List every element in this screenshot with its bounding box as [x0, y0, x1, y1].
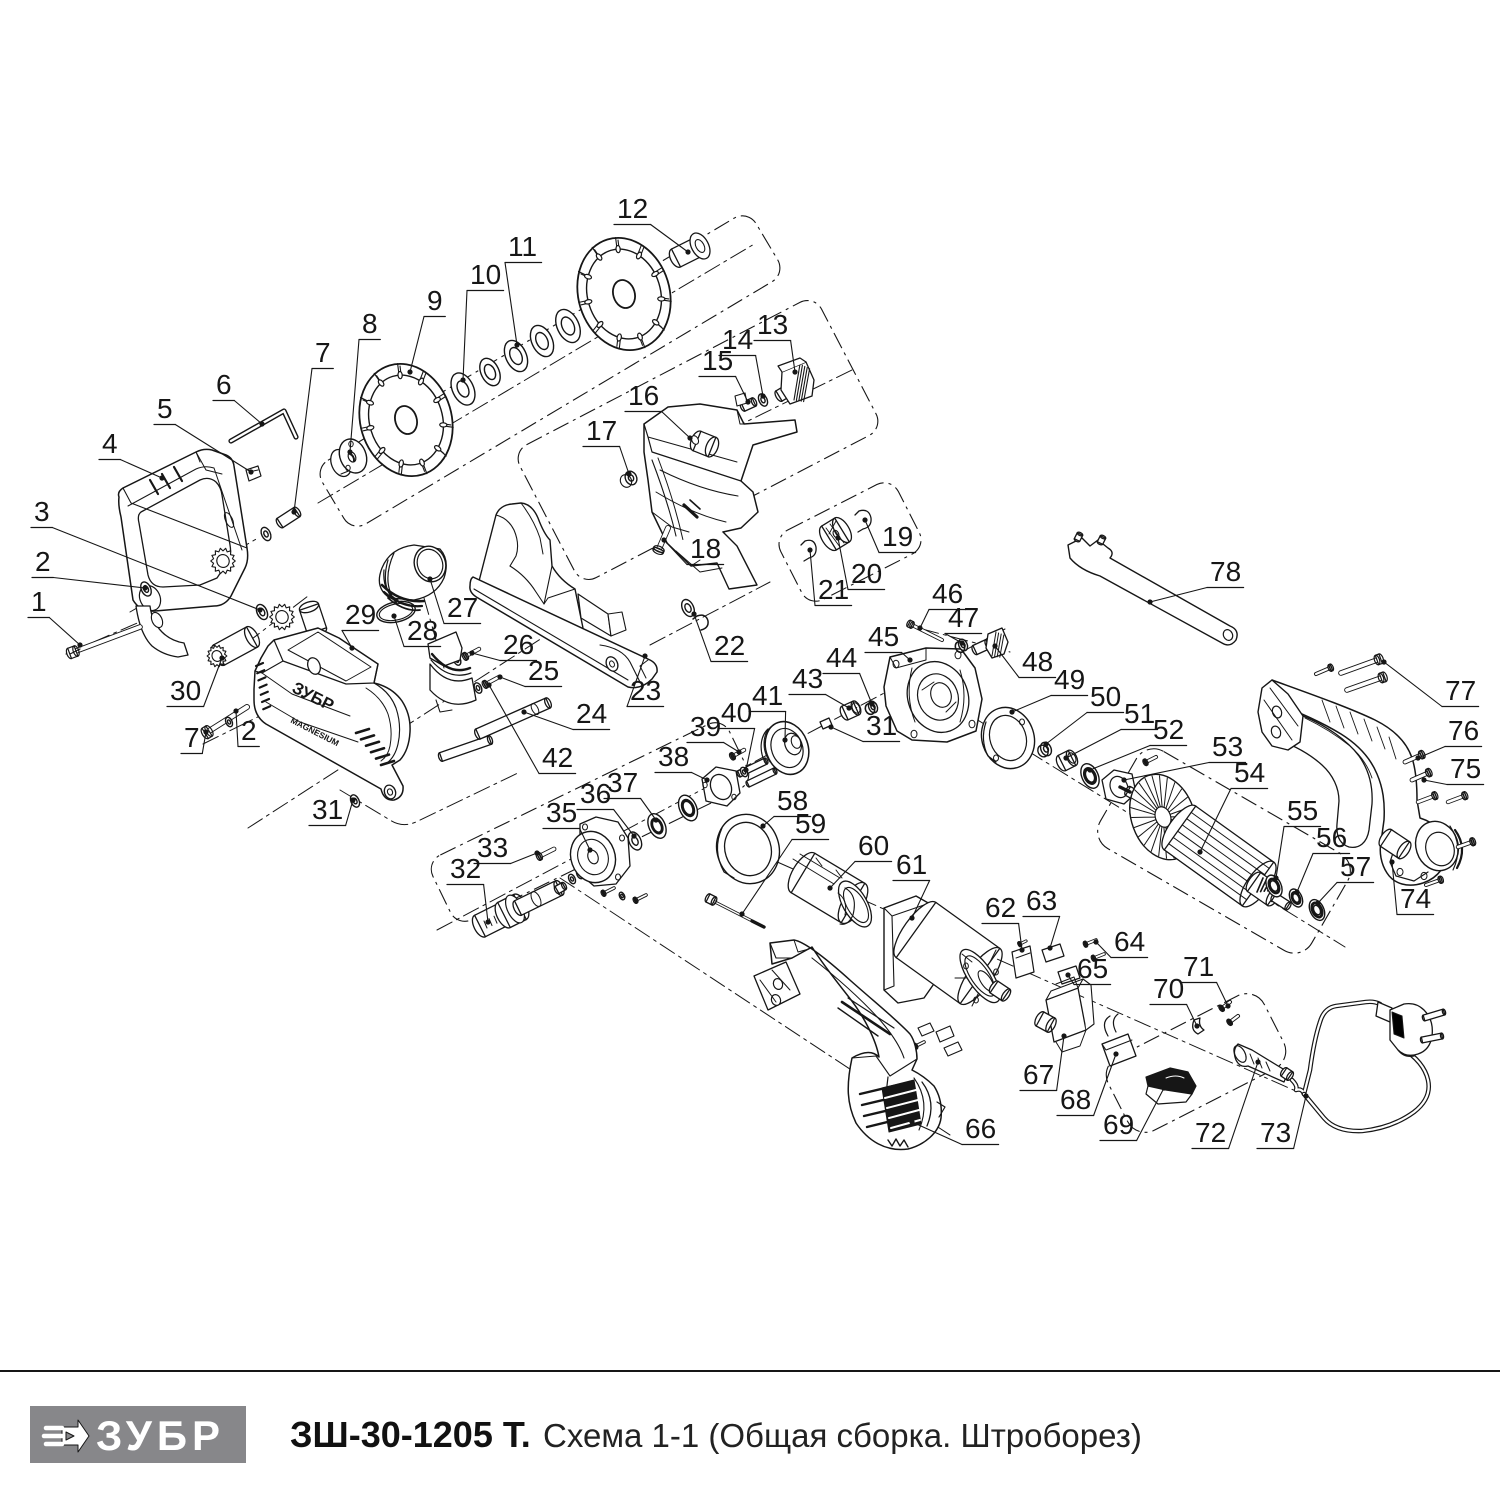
svg-text:31: 31 [866, 710, 897, 741]
svg-text:41: 41 [752, 680, 783, 711]
svg-text:37: 37 [607, 767, 638, 798]
svg-text:16: 16 [628, 380, 659, 411]
svg-text:6: 6 [216, 369, 232, 400]
svg-text:15: 15 [702, 345, 733, 376]
svg-text:40: 40 [721, 697, 752, 728]
svg-text:1: 1 [31, 586, 47, 617]
svg-text:38: 38 [658, 741, 689, 772]
svg-text:13: 13 [757, 309, 788, 340]
svg-text:66: 66 [965, 1113, 996, 1144]
svg-text:11: 11 [508, 231, 537, 262]
svg-text:21: 21 [818, 574, 849, 605]
svg-text:24: 24 [576, 698, 607, 729]
svg-text:33: 33 [477, 832, 508, 863]
svg-text:57: 57 [1340, 851, 1371, 882]
svg-text:64: 64 [1114, 926, 1145, 957]
svg-text:ЗШ-30-1205 Т.: ЗШ-30-1205 Т. [290, 1414, 531, 1455]
svg-text:69: 69 [1103, 1109, 1134, 1140]
svg-text:49: 49 [1054, 664, 1085, 695]
svg-text:Схема 1-1 (Общая сборка. Штроб: Схема 1-1 (Общая сборка. Штроборез) [543, 1417, 1142, 1454]
svg-text:18: 18 [690, 533, 721, 564]
svg-text:22: 22 [714, 630, 745, 661]
svg-text:77: 77 [1445, 675, 1476, 706]
svg-text:43: 43 [792, 663, 823, 694]
svg-text:17: 17 [586, 415, 617, 446]
svg-text:54: 54 [1234, 757, 1265, 788]
svg-text:20: 20 [851, 558, 882, 589]
svg-text:23: 23 [630, 675, 661, 706]
svg-text:2: 2 [241, 715, 257, 746]
svg-text:39: 39 [690, 711, 721, 742]
svg-text:5: 5 [157, 393, 173, 424]
svg-text:12: 12 [617, 193, 648, 224]
svg-text:56: 56 [1316, 822, 1347, 853]
svg-text:3: 3 [34, 496, 50, 527]
svg-text:ЗУБР: ЗУБР [96, 1412, 225, 1459]
svg-text:68: 68 [1060, 1084, 1091, 1115]
svg-text:45: 45 [868, 621, 899, 652]
svg-text:30: 30 [170, 675, 201, 706]
svg-text:42: 42 [542, 742, 573, 773]
svg-text:29: 29 [345, 599, 376, 630]
svg-text:75: 75 [1450, 753, 1481, 784]
svg-text:19: 19 [882, 521, 913, 552]
svg-text:7: 7 [184, 722, 200, 753]
svg-text:47: 47 [948, 602, 979, 633]
svg-text:4: 4 [102, 428, 118, 459]
svg-text:31: 31 [312, 794, 343, 825]
svg-text:73: 73 [1260, 1117, 1291, 1148]
svg-text:9: 9 [427, 285, 443, 316]
svg-text:71: 71 [1183, 951, 1214, 982]
svg-text:35: 35 [546, 797, 577, 828]
svg-text:59: 59 [795, 808, 826, 839]
svg-text:74: 74 [1400, 883, 1431, 914]
svg-text:60: 60 [858, 830, 889, 861]
svg-text:55: 55 [1287, 795, 1318, 826]
svg-text:67: 67 [1023, 1059, 1054, 1090]
svg-text:65: 65 [1077, 953, 1108, 984]
svg-text:76: 76 [1448, 715, 1479, 746]
svg-text:48: 48 [1022, 646, 1053, 677]
svg-text:50: 50 [1090, 681, 1121, 712]
svg-text:8: 8 [362, 308, 378, 339]
svg-text:51: 51 [1124, 698, 1155, 729]
svg-text:7: 7 [315, 337, 331, 368]
svg-text:63: 63 [1026, 885, 1057, 916]
svg-text:27: 27 [447, 592, 478, 623]
svg-text:78: 78 [1210, 556, 1241, 587]
svg-text:72: 72 [1195, 1117, 1226, 1148]
svg-text:2: 2 [35, 546, 51, 577]
svg-text:70: 70 [1153, 973, 1184, 1004]
svg-text:10: 10 [470, 259, 501, 290]
svg-text:28: 28 [407, 615, 438, 646]
svg-text:61: 61 [896, 849, 927, 880]
svg-text:26: 26 [503, 629, 534, 660]
svg-text:52: 52 [1153, 714, 1184, 745]
svg-text:62: 62 [985, 892, 1016, 923]
svg-text:44: 44 [826, 642, 857, 673]
